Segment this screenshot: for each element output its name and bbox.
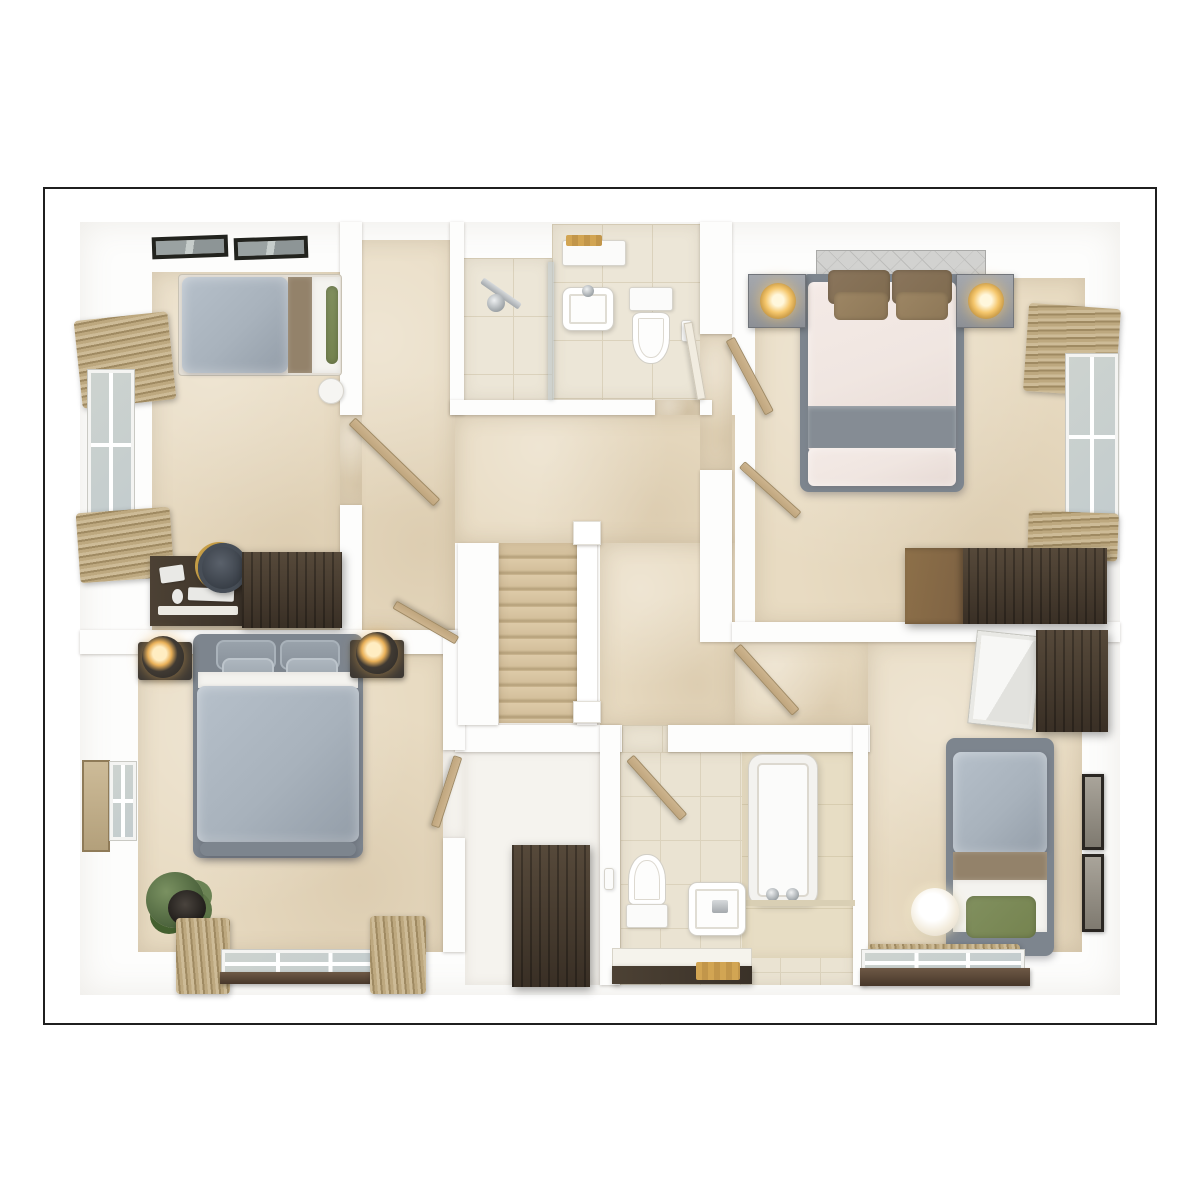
table-lamp [142,636,184,678]
toilet-cistern [629,287,673,311]
mouse [172,589,183,604]
roof-window [152,235,229,260]
towel [566,235,602,246]
pillow [834,292,888,320]
staircase [497,543,577,723]
shower-glass [548,262,554,400]
bathtub [748,754,818,906]
wall [853,725,868,985]
tap [712,900,728,913]
paper [159,564,185,583]
wall [455,725,622,752]
table-lamp [760,283,796,319]
double-bed-foot [808,448,956,486]
pillow [896,292,948,320]
table-lamp [356,632,398,674]
wall [450,222,464,414]
picture-frame [1082,774,1104,850]
desk-chair [198,543,248,593]
floor-door-gap-bathroom [655,400,700,415]
wardrobe [1036,630,1108,732]
bedside-table [318,378,344,404]
toilet [632,312,670,364]
floor-corridor [735,642,868,725]
toilet-roll-holder [604,868,614,890]
window-sill [220,972,392,984]
floor-plan-render [0,0,1200,1200]
newel-post [573,701,601,723]
step-edge [742,900,855,906]
single-bed-duvet [953,752,1047,854]
bed-runner [808,406,956,448]
pillow [966,896,1036,938]
single-bed-blanket [953,852,1047,880]
newel-post [573,521,601,545]
wall [458,543,498,725]
picture-frame [1082,854,1104,932]
curtain [370,916,426,994]
single-bed-duvet [182,277,288,373]
floor-door-gap-ensuite [622,725,668,752]
floor-lamp [911,888,959,936]
dressing-mirror [968,631,1041,729]
table-lamp [968,283,1004,319]
window-sill [860,968,1030,986]
towel-basket [696,962,740,980]
wall [340,505,362,630]
wall [450,400,655,415]
wall [700,470,732,642]
shower-head [487,294,505,312]
single-bed-pillow [326,286,338,364]
toilet [628,854,666,906]
toilet-cistern [626,904,668,928]
wall-art [82,760,110,852]
wall [443,838,465,952]
wall [600,725,620,985]
window [88,370,134,520]
desk-shelf [158,606,238,615]
window [1066,354,1118,520]
single-bed-blanket [288,277,312,373]
tap [582,285,594,297]
wall [700,400,712,415]
floor-shower [463,258,552,400]
double-bed-duvet [197,686,359,842]
bed-foot [200,842,356,856]
wardrobe [242,552,342,628]
chest-end [905,548,963,624]
wall [700,222,732,334]
roof-window [234,236,309,261]
wardrobe [512,845,590,987]
window [110,762,136,840]
wall [668,725,870,752]
stair-railing [577,527,597,725]
